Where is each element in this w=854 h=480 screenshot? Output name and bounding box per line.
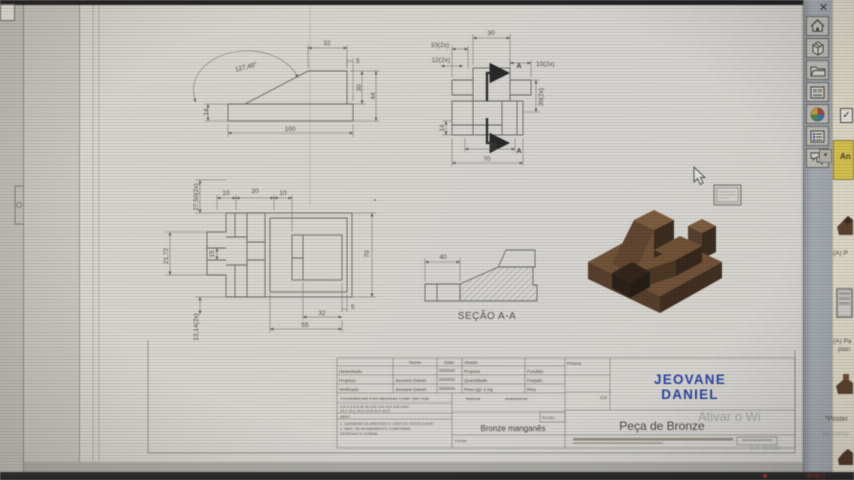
tb-tol-row2: ±0,1 ±0,1 ±0,2 ±0,3 ±0,4 ±0,5	[340, 409, 389, 413]
plan-dim-left-b: 12(2x)	[432, 57, 450, 64]
tb-corner-smudge	[742, 439, 772, 441]
tb-h-nome: Nome	[409, 360, 422, 365]
drawing-canvas: 32 5 127,48° 14 100 30 44 A A	[0, 0, 854, 480]
plan-dim-left-a: 10(2x)	[431, 42, 449, 49]
tb-date-smudge	[439, 387, 455, 390]
tb-tol-header: TOLERÂNCIAS P/AS MEDIDAS CONF. DIN 7168	[340, 396, 430, 401]
section-caption: SEÇÃO A-A	[458, 309, 516, 322]
ink-speck	[374, 199, 376, 201]
windows-watermark: Ativar o Wi a o Windo	[698, 409, 782, 452]
tb-f1: Propriet.	[464, 369, 481, 374]
side-dim-t1: 10	[222, 190, 230, 197]
list-button[interactable]	[806, 126, 829, 146]
front-view: 32 5 127,48° 14 100 30 44	[193, 40, 380, 137]
watermark-line3: a o Windo	[750, 445, 782, 452]
sticky-note[interactable]: An	[833, 140, 854, 180]
home-button[interactable]	[806, 16, 829, 36]
side-dim-v3: 15	[209, 250, 216, 258]
tb-tol-tag: ABNT	[340, 415, 351, 419]
front-dim-top: 32	[323, 40, 331, 47]
panel-image-frame[interactable]	[836, 288, 853, 318]
dropdown-widget[interactable]: ▾	[819, 149, 832, 163]
image-icon	[810, 86, 825, 99]
tb-footer-smudge	[573, 442, 663, 444]
plan-dim-right-b: 30(2x)	[538, 88, 545, 106]
tb-r2-label: Projetou	[339, 378, 356, 383]
panel-thumb-2[interactable]	[835, 370, 854, 396]
tb-r2-name: Jeovane Daniel	[395, 378, 426, 383]
mouse-cursor	[694, 167, 705, 185]
tb-note1: 1. QUEBRAR AS ARESTAS E CANTOS VIVOS 0,5…	[340, 422, 435, 426]
panel-thumb-1[interactable]	[836, 213, 854, 237]
screen-photo: 32 5 127,48° 14 100 30 44 A A	[0, 0, 854, 480]
panel-caption-3: *Poster	[825, 416, 854, 423]
tb-r3-label: Verificado	[339, 387, 359, 392]
plan-dim-left-c: 14	[439, 124, 446, 132]
tb-date-smudge	[439, 378, 455, 381]
side-dim-b3: 55	[301, 322, 309, 329]
plan-section-label-bottom: A	[516, 148, 521, 155]
home-icon	[810, 19, 825, 33]
tb-revisao-label: Revisão	[542, 416, 555, 420]
taskbar	[0, 472, 854, 480]
tb-escala-label: Escala	[455, 439, 467, 443]
side-dim-b2: 32	[318, 310, 326, 317]
panel-thumb-3[interactable]	[837, 447, 854, 467]
image-button[interactable]	[806, 82, 829, 102]
watermark-line1: Ativar o Wi	[698, 409, 761, 424]
section-dim-40: 40	[439, 254, 447, 261]
front-dim-h30: 30	[356, 84, 363, 92]
tb-f3: Peso (g): 1 Kg	[464, 387, 493, 392]
side-dim-t2: 20	[251, 188, 259, 195]
tb-date-smudge	[439, 369, 455, 372]
list-icon	[810, 130, 825, 143]
front-dim-bottom: 100	[285, 126, 296, 133]
watermark-line2: ao comp	[822, 431, 854, 438]
section-view: 40 SEÇÃO A-A	[425, 250, 537, 322]
close-button[interactable]: ✕	[816, 1, 831, 16]
side-view: 27,50(2x) 10 20 10 21,72 15 70 5 32 55 1…	[163, 180, 376, 341]
plan-dim-b70: 70	[483, 156, 491, 163]
tb-g2: Forjado	[527, 378, 543, 383]
taskbar-red-dot	[763, 474, 767, 478]
tb-h-visado: Visado	[464, 360, 478, 365]
tb-f2: Quantidade	[464, 378, 488, 383]
panel-caption-2: (A) Pa	[833, 338, 854, 345]
plan-dim-top: 30	[487, 30, 495, 37]
globe-button[interactable]	[806, 104, 829, 124]
tb-h-data: Data	[444, 360, 454, 365]
plan-dim-right-a: 10(2x)	[536, 61, 554, 68]
tb-material-value: Bronze manganês	[481, 424, 546, 433]
checkbox-checked[interactable]: ✓	[840, 108, 853, 123]
side-dim-t3: 10	[279, 190, 287, 197]
side-dim-v5: 13,14(2x)	[193, 313, 200, 340]
front-dim-step: 5	[356, 58, 360, 65]
tb-r3-name: Jeovane Daniel	[395, 387, 426, 392]
package-icon	[811, 41, 825, 56]
side-dim-v1: 27,50(2x)	[193, 183, 200, 210]
folder-icon	[810, 64, 826, 77]
plan-section-label-top: A	[516, 63, 521, 70]
front-dim-h44: 44	[370, 92, 377, 100]
front-dim-left: 14	[203, 108, 210, 116]
tb-h-cor: Cor	[600, 395, 608, 400]
tb-note2: 2. MED. DE ACABAMENTO CONFORME	[340, 427, 411, 431]
tb-part-name: Peça de Bronze	[619, 419, 705, 433]
globe-icon	[810, 107, 825, 122]
tb-g1: Fundido	[527, 369, 544, 374]
tb-g3: Req.	[527, 387, 537, 392]
plan-dim-b50: 50	[489, 142, 497, 149]
tb-author-line2: DANIEL	[661, 387, 718, 402]
panel-caption-2b: plan	[838, 346, 854, 353]
tb-footer-smudge	[573, 438, 733, 441]
sidebar-pull-tab[interactable]	[15, 186, 23, 224]
plan-view: A A 30 10(2x) 12(2x) 10(2x) 30(2x) 14 50…	[431, 30, 555, 166]
iso-part-3d	[588, 210, 722, 313]
folder-button[interactable]	[806, 60, 829, 80]
side-dim-v2: 21,72	[163, 247, 170, 264]
tb-author-line1: JEOVANE	[654, 372, 726, 387]
taskbar-label: MMC	[807, 473, 827, 480]
tb-r1-label: Desenhado	[339, 369, 363, 374]
tb-acab-label: Acabamento	[505, 396, 528, 401]
side-dim-b1: 5	[351, 304, 355, 311]
panel-caption-1: (A) P	[833, 250, 854, 257]
tb-h-pintura: Pintura	[567, 361, 582, 366]
drag-page-icon	[714, 185, 741, 205]
tb-note3: DESENHO E NORMA	[340, 432, 378, 436]
title-block: Nome Data Visado Pintura Cor Desenhado P…	[337, 358, 795, 448]
side-dim-v4: 70	[364, 250, 371, 258]
package-button[interactable]	[806, 38, 829, 58]
front-dim-angle: 127,48°	[234, 60, 258, 73]
tb-mat-label: Material	[466, 396, 480, 401]
